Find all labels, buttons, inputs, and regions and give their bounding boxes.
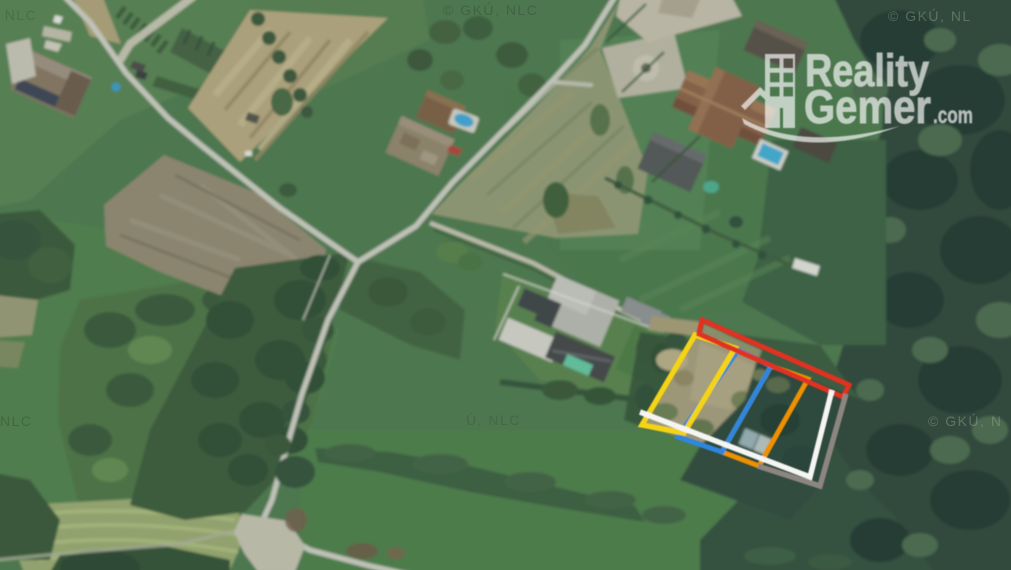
svg-text:© GKÚ, N: © GKÚ, N (928, 413, 1002, 429)
svg-text:Gemer: Gemer (804, 80, 931, 133)
svg-text:© GKÚ, NLC: © GKÚ, NLC (443, 2, 538, 18)
svg-text:NLC: NLC (0, 413, 33, 429)
svg-text:. NLC: . NLC (0, 7, 37, 23)
svg-text:© GKÚ, NL: © GKÚ, NL (888, 8, 972, 24)
svg-text:Ú, NLC: Ú, NLC (466, 412, 521, 428)
svg-text:.com: .com (933, 102, 973, 128)
